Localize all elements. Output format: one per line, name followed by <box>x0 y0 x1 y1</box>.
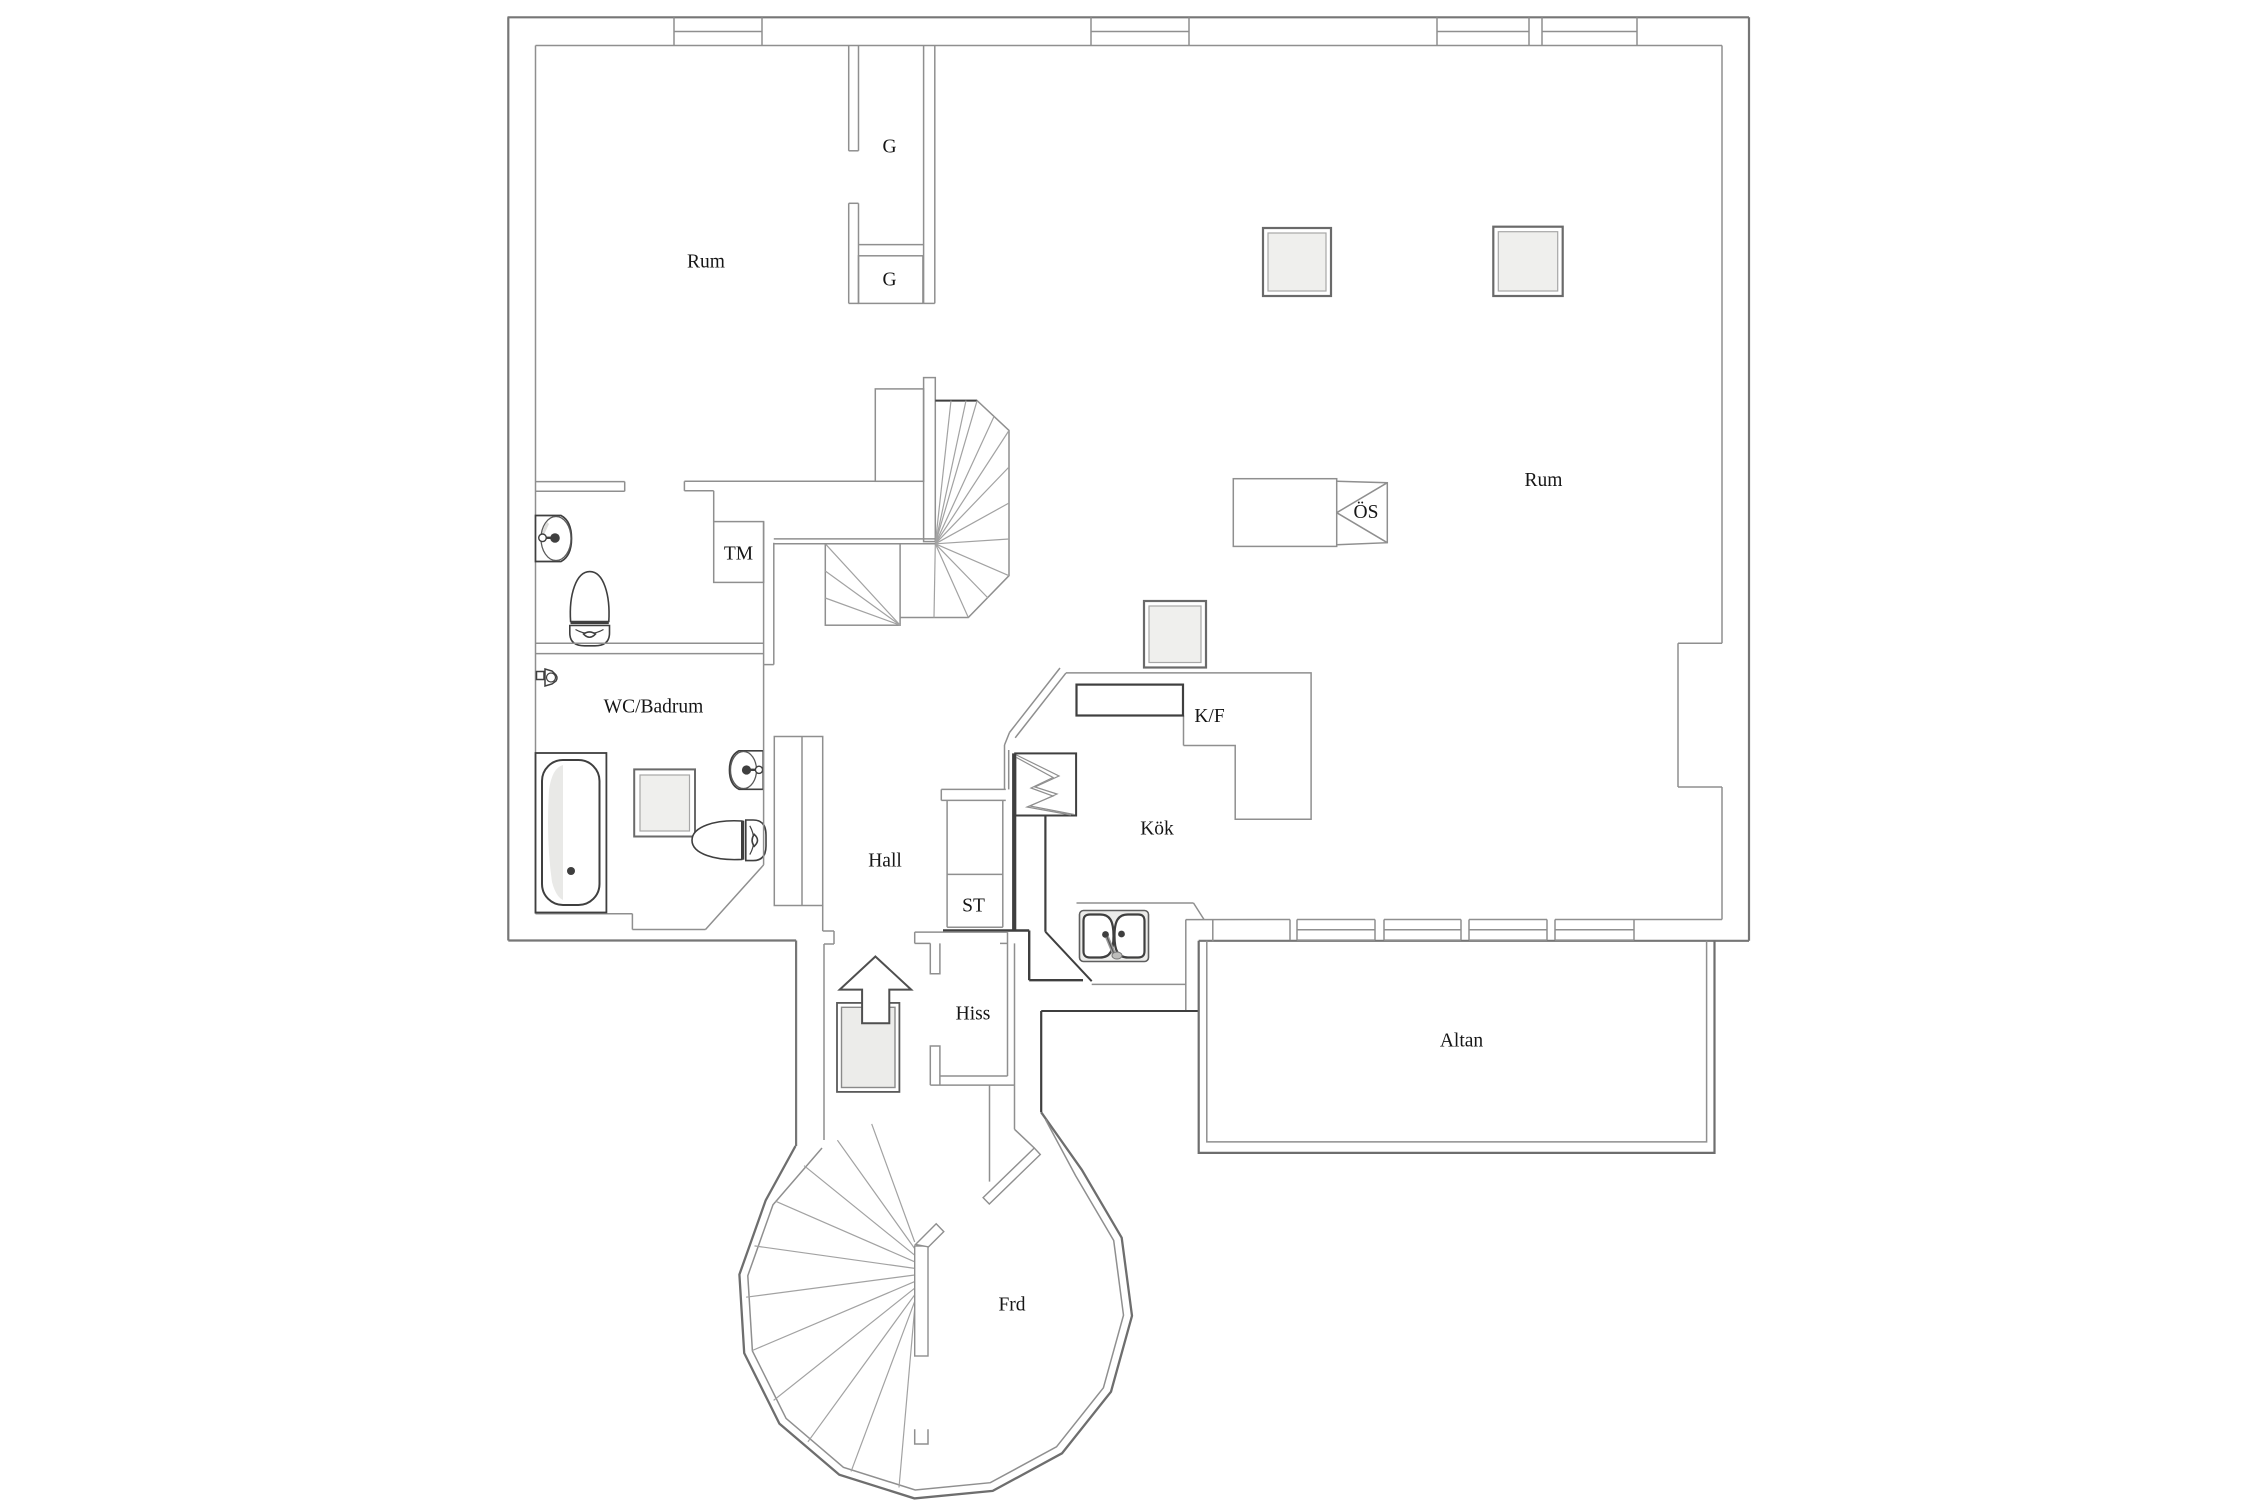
svg-text:Rum: Rum <box>1525 470 1563 491</box>
svg-text:Hall: Hall <box>868 851 902 872</box>
svg-text:Altan: Altan <box>1440 1031 1484 1052</box>
svg-text:WC/Badrum: WC/Badrum <box>604 697 704 718</box>
svg-text:ST: ST <box>962 896 985 917</box>
svg-text:K/F: K/F <box>1194 706 1225 727</box>
svg-text:Hiss: Hiss <box>956 1004 991 1025</box>
svg-text:Frd: Frd <box>998 1295 1025 1316</box>
svg-text:G: G <box>882 270 896 291</box>
svg-text:TM: TM <box>724 544 753 565</box>
svg-text:Rum: Rum <box>687 252 725 273</box>
svg-text:Kök: Kök <box>1140 819 1174 840</box>
svg-text:G: G <box>882 137 896 158</box>
svg-text:ÖS: ÖS <box>1354 502 1379 523</box>
